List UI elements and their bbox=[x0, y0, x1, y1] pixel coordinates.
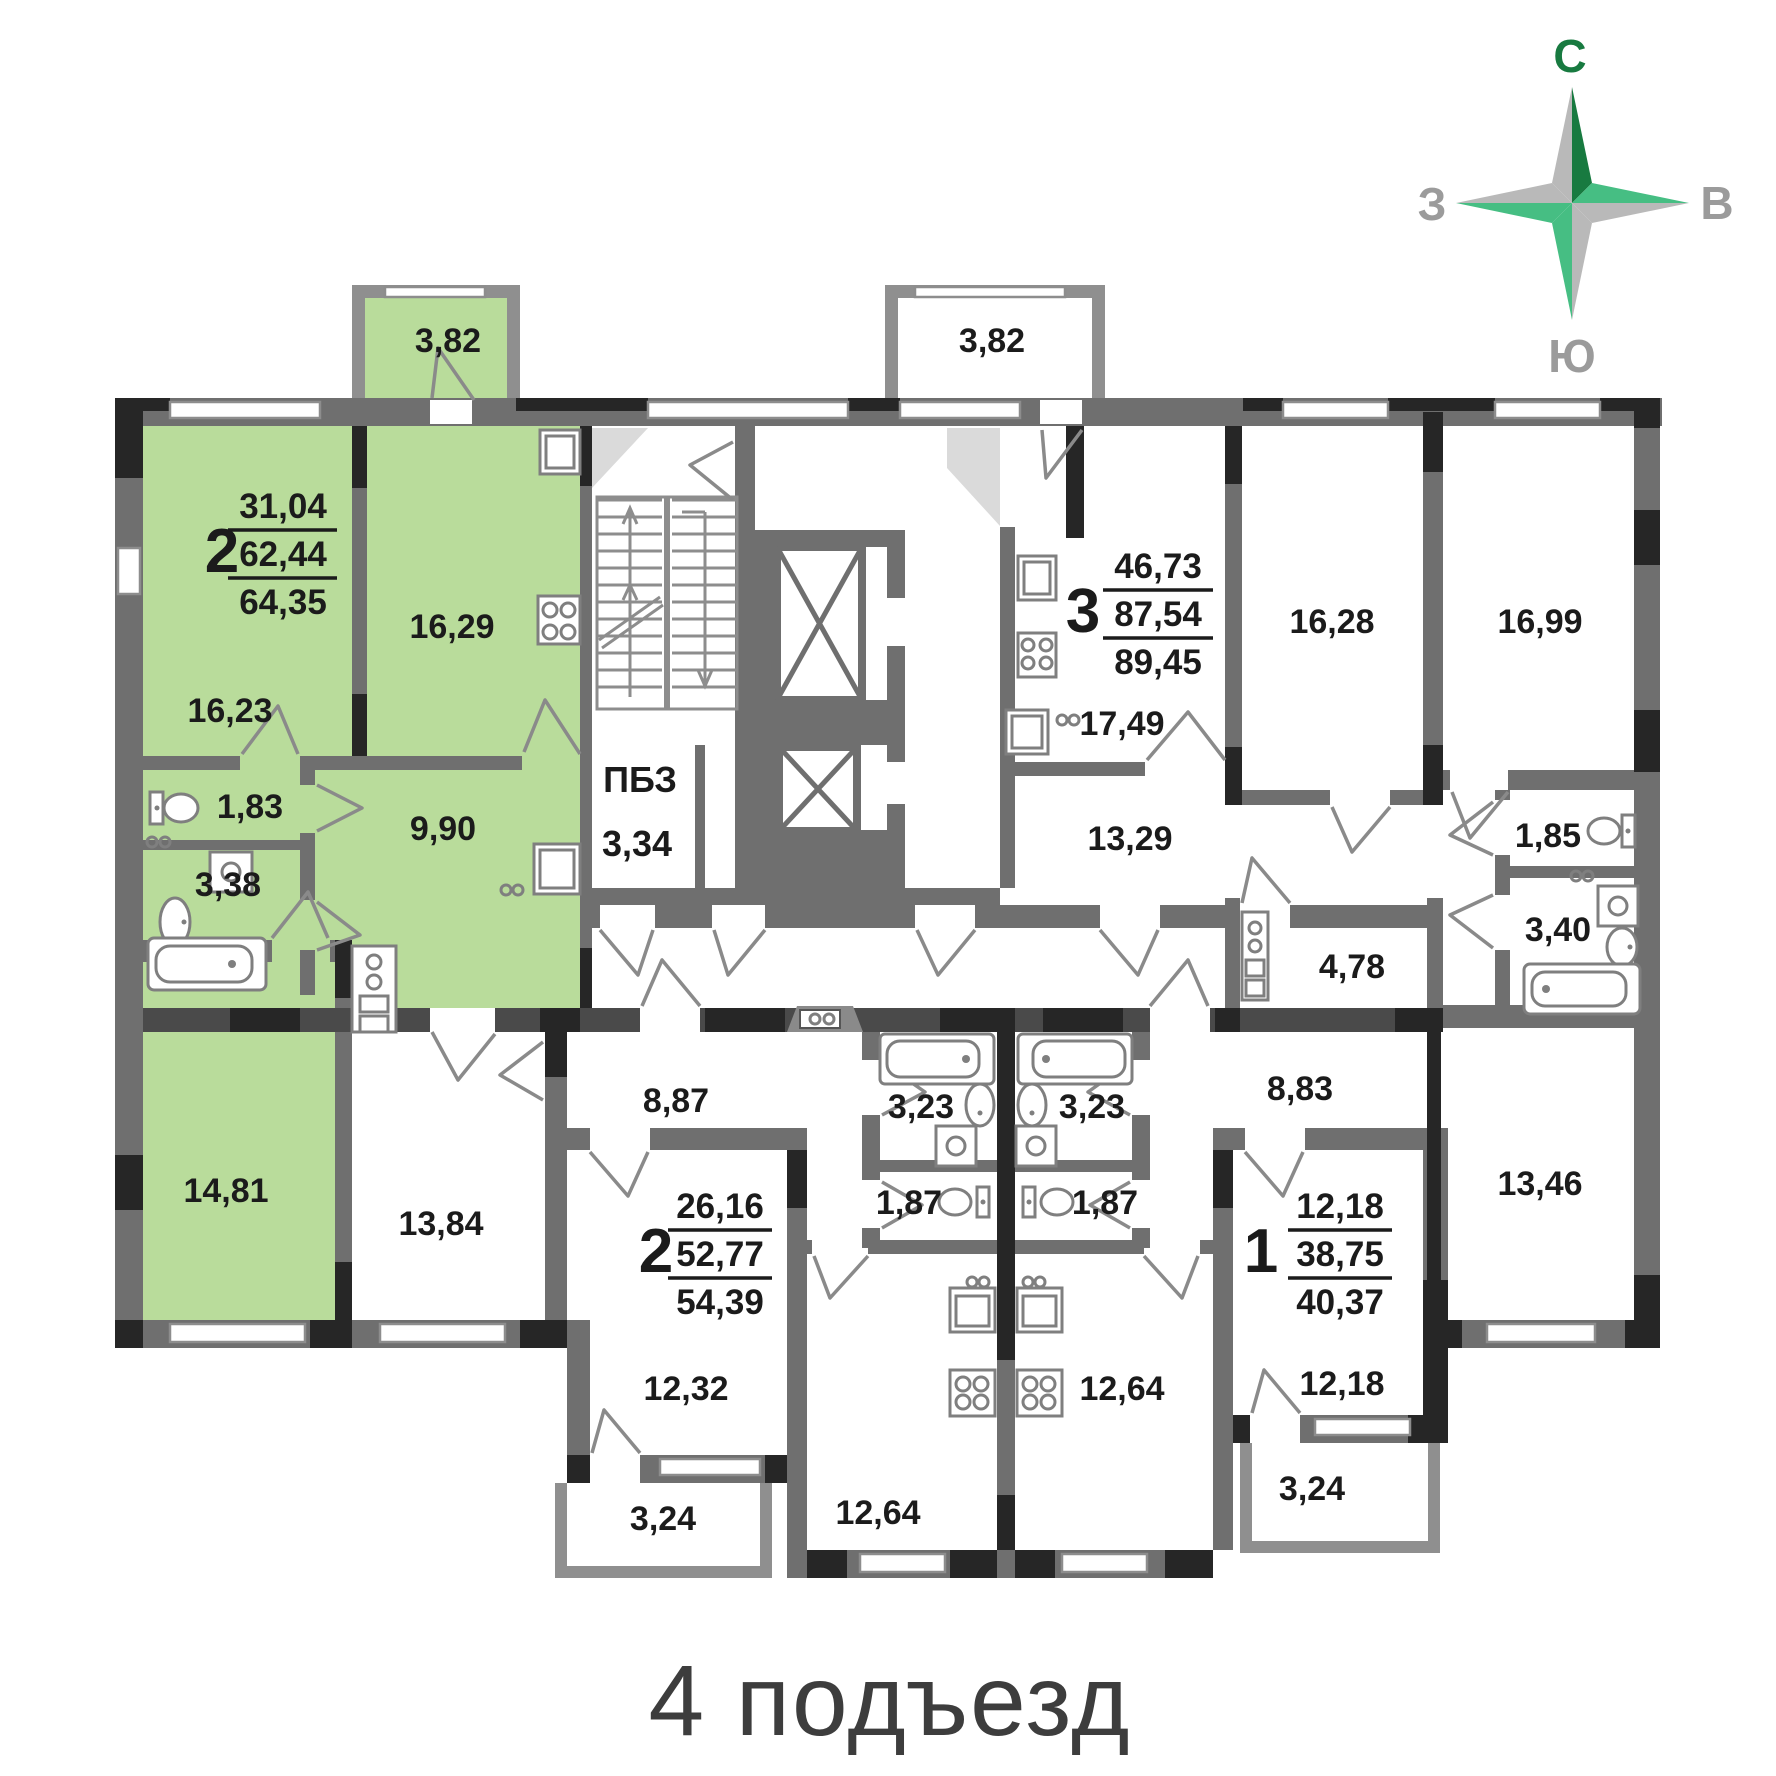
bathtub-icon bbox=[1018, 1034, 1132, 1084]
washer-icon bbox=[1016, 1126, 1056, 1166]
room-area-label: 8,83 bbox=[1267, 1070, 1333, 1108]
bathtub-icon bbox=[1524, 964, 1640, 1014]
common-area-labels: ПБЗ 3,34 bbox=[602, 759, 677, 864]
room-area-label: 16,99 bbox=[1497, 603, 1582, 641]
total-area: 54,39 bbox=[676, 1283, 764, 1322]
vent-shaft-icon bbox=[1242, 912, 1268, 1000]
compass-east-label: В bbox=[1700, 177, 1733, 229]
stove-icon bbox=[950, 1370, 995, 1416]
floor-plan-page: 2 31,04 62,44 64,35 16,23 16,29 3,82 1,8… bbox=[0, 0, 1776, 1776]
elevator-icon bbox=[777, 547, 862, 700]
room-area-label: 13,84 bbox=[398, 1205, 483, 1243]
washer-icon bbox=[936, 1126, 976, 1166]
room-area-label: 3,82 bbox=[415, 322, 481, 360]
stove-icon bbox=[538, 596, 580, 644]
compass-west-label: З bbox=[1418, 178, 1447, 230]
vent-shaft-icon bbox=[352, 946, 396, 1032]
total-area: 64,35 bbox=[239, 583, 327, 622]
kitchen-sink-icon bbox=[1017, 1277, 1062, 1332]
apartment-rooms-count: 2 bbox=[639, 1217, 673, 1286]
sink-icon bbox=[1607, 928, 1637, 966]
room-area-label: 3,82 bbox=[959, 322, 1025, 360]
stove-icon bbox=[1018, 633, 1056, 677]
room-area-label: 3,38 bbox=[195, 866, 261, 904]
room-area-label: 16,28 bbox=[1289, 603, 1374, 641]
room-area-label: 16,23 bbox=[187, 692, 272, 730]
room-area-label: 1,85 bbox=[1515, 817, 1581, 855]
living-area: 12,18 bbox=[1296, 1187, 1384, 1226]
kitchen-sink-icon bbox=[950, 1277, 995, 1332]
room-area-label: 9,90 bbox=[410, 810, 476, 848]
room-area-label: 12,64 bbox=[835, 1494, 920, 1532]
room-area-label: 3,23 bbox=[1059, 1088, 1125, 1126]
bathtub-icon bbox=[148, 938, 266, 990]
room-area-label: 13,46 bbox=[1497, 1165, 1582, 1203]
room-area-label: 3,23 bbox=[888, 1088, 954, 1126]
apartment-rooms-count: 1 bbox=[1244, 1217, 1278, 1286]
apartment-area: 38,75 bbox=[1296, 1235, 1384, 1274]
apartment-area: 87,54 bbox=[1114, 595, 1202, 634]
toilet-icon bbox=[150, 792, 198, 824]
toilet-icon bbox=[939, 1187, 989, 1217]
room-area-label: 3,24 bbox=[630, 1500, 696, 1538]
apartment-area: 62,44 bbox=[239, 535, 327, 574]
living-area: 46,73 bbox=[1114, 547, 1202, 586]
room-area-label: 4,78 bbox=[1319, 948, 1385, 986]
living-area: 31,04 bbox=[239, 487, 327, 526]
corridor-sink-icon bbox=[787, 1006, 863, 1032]
compass-north-label: С bbox=[1553, 30, 1586, 82]
room-area-label: 12,32 bbox=[643, 1370, 728, 1408]
room-area-label: 8,87 bbox=[643, 1082, 709, 1120]
pbz-label: ПБЗ bbox=[603, 759, 677, 800]
room-area-label: 16,29 bbox=[409, 608, 494, 646]
room-area-label: 3,40 bbox=[1525, 911, 1591, 949]
room-area-label: 12,64 bbox=[1079, 1370, 1164, 1408]
floor-plan: 2 31,04 62,44 64,35 16,23 16,29 3,82 1,8… bbox=[0, 0, 1776, 1776]
stairs-icon bbox=[597, 497, 737, 709]
page-title: 4 подъезд bbox=[648, 1645, 1131, 1757]
compass-south-label: Ю bbox=[1548, 330, 1595, 382]
toilet-icon bbox=[1588, 815, 1635, 847]
room-area-label: 17,49 bbox=[1079, 705, 1164, 743]
total-area: 89,45 bbox=[1114, 643, 1202, 682]
total-area: 40,37 bbox=[1296, 1283, 1384, 1322]
room-area-label: 12,18 bbox=[1299, 1365, 1384, 1403]
kitchen-sink-icon bbox=[1006, 710, 1079, 754]
fridge-icon bbox=[540, 430, 580, 474]
elevator-small-icon bbox=[779, 747, 857, 831]
apartment-area: 52,77 bbox=[676, 1235, 764, 1274]
room-area-label: 13,29 bbox=[1087, 820, 1172, 858]
room-area-label: 1,87 bbox=[876, 1184, 942, 1222]
room-area-label: 3,24 bbox=[1279, 1470, 1345, 1508]
room-area-label: 14,81 bbox=[183, 1172, 268, 1210]
room-area-label: 1,87 bbox=[1072, 1184, 1138, 1222]
pbz-area: 3,34 bbox=[602, 823, 672, 864]
compass-rose: С В Ю З bbox=[1418, 30, 1734, 382]
apartment-rooms-count: 3 bbox=[1066, 577, 1100, 646]
sink-icon bbox=[1018, 1084, 1046, 1126]
living-area: 26,16 bbox=[676, 1187, 764, 1226]
sink-icon bbox=[966, 1084, 994, 1126]
apartment-rooms-count: 2 bbox=[205, 517, 239, 586]
bathtub-icon bbox=[880, 1034, 994, 1084]
stove-icon bbox=[1017, 1370, 1062, 1416]
toilet-icon bbox=[1023, 1187, 1073, 1217]
fridge-icon bbox=[1018, 556, 1056, 600]
wall-shadows bbox=[592, 428, 1000, 526]
room-area-label: 1,83 bbox=[217, 788, 283, 826]
